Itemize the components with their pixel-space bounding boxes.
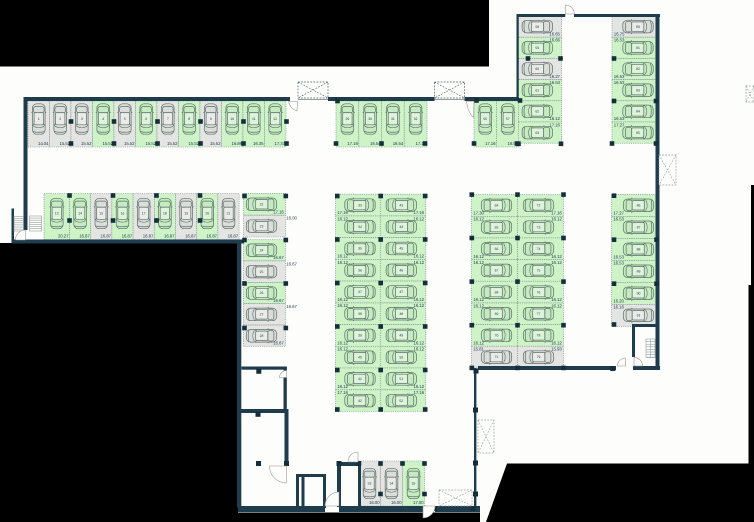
svg-text:15.52: 15.52 [210,141,221,146]
svg-text:77: 77 [537,312,541,316]
svg-text:16.12: 16.12 [414,347,425,352]
svg-text:16.12: 16.12 [551,254,562,259]
svg-text:80: 80 [636,25,640,29]
svg-text:16.12: 16.12 [337,260,348,265]
svg-text:17.16: 17.16 [485,141,496,146]
svg-text:16.53: 16.53 [614,80,625,85]
svg-text:16.12: 16.12 [414,260,425,265]
svg-text:52: 52 [399,399,403,403]
svg-text:16.65: 16.65 [549,31,560,36]
svg-text:83: 83 [636,88,640,92]
svg-text:71: 71 [495,355,499,359]
svg-text:16.12: 16.12 [551,217,562,222]
svg-text:62: 62 [535,110,539,114]
svg-text:16.12: 16.12 [337,254,348,259]
svg-text:16.87: 16.87 [185,234,196,239]
svg-text:66: 66 [495,247,499,251]
svg-text:16.53: 16.53 [613,217,624,222]
svg-text:14: 14 [78,212,82,216]
svg-text:70: 70 [495,334,499,338]
svg-text:16.12: 16.12 [414,254,425,259]
svg-text:48: 48 [399,312,403,316]
svg-text:16.53: 16.53 [613,255,624,260]
svg-text:73: 73 [537,225,541,229]
svg-text:43: 43 [399,203,403,207]
svg-text:85: 85 [636,131,640,135]
svg-text:60: 60 [535,67,539,71]
svg-text:74: 74 [537,247,541,251]
svg-text:15.52: 15.52 [124,141,135,146]
svg-text:16.12: 16.12 [551,260,562,265]
svg-text:10: 10 [230,117,234,121]
svg-text:16.12: 16.12 [551,340,562,345]
svg-text:16.53: 16.53 [549,80,560,85]
svg-text:17.37: 17.37 [275,141,286,146]
svg-text:53: 53 [368,482,372,486]
svg-text:16.12: 16.12 [337,341,348,346]
svg-text:16.12: 16.12 [551,303,562,308]
svg-text:69: 69 [495,312,499,316]
svg-text:15.93: 15.93 [551,347,562,352]
svg-text:36: 36 [358,269,362,273]
svg-text:16.12: 16.12 [414,384,425,389]
svg-text:79: 79 [537,355,541,359]
svg-text:15: 15 [99,212,103,216]
svg-text:17.16: 17.16 [551,211,562,216]
svg-text:16.00: 16.00 [369,500,380,505]
svg-text:16.87: 16.87 [79,234,90,239]
svg-text:76: 76 [537,290,541,294]
svg-text:7: 7 [167,117,169,121]
svg-text:16.12: 16.12 [414,341,425,346]
svg-text:16.12: 16.12 [414,303,425,308]
svg-text:61: 61 [535,88,539,92]
svg-text:41: 41 [358,377,362,381]
svg-text:16.66: 16.66 [549,38,560,43]
svg-text:65: 65 [495,225,499,229]
svg-text:16.12: 16.12 [473,254,484,259]
svg-text:16.86: 16.86 [232,141,243,146]
svg-text:16.67: 16.67 [273,255,284,260]
svg-text:38: 38 [358,312,362,316]
svg-text:27: 27 [260,313,264,317]
svg-text:15.81: 15.81 [473,347,484,352]
svg-text:78: 78 [537,334,541,338]
svg-text:17.16: 17.16 [337,390,348,395]
svg-text:16.12: 16.12 [473,297,484,302]
svg-text:16.87: 16.87 [143,234,154,239]
svg-text:16.53: 16.53 [614,74,625,79]
svg-text:5: 5 [124,117,126,121]
svg-text:16.12: 16.12 [337,303,348,308]
svg-text:63: 63 [535,131,539,135]
svg-text:75: 75 [537,269,541,273]
svg-text:16.12: 16.12 [337,216,348,221]
svg-text:31: 31 [391,117,395,121]
svg-text:8: 8 [188,117,190,121]
svg-text:40: 40 [358,355,362,359]
svg-text:17.16: 17.16 [414,390,425,395]
svg-text:45: 45 [399,247,403,251]
svg-text:17: 17 [142,212,146,216]
svg-text:87: 87 [637,226,641,230]
svg-text:16.12: 16.12 [414,216,425,221]
svg-text:16.53: 16.53 [613,261,624,266]
svg-text:91: 91 [637,314,641,318]
svg-text:16.35: 16.35 [253,141,264,146]
svg-text:16.87: 16.87 [100,234,111,239]
svg-text:16.12: 16.12 [473,303,484,308]
svg-text:82: 82 [636,67,640,71]
svg-text:44: 44 [399,225,403,229]
svg-text:17.30: 17.30 [473,211,484,216]
svg-text:17.00: 17.00 [413,500,424,505]
svg-text:30: 30 [368,117,372,121]
svg-text:16.12: 16.12 [337,384,348,389]
svg-text:37: 37 [358,290,362,294]
svg-text:86: 86 [637,204,641,208]
svg-text:16: 16 [121,212,125,216]
svg-text:49: 49 [399,334,403,338]
svg-text:46: 46 [399,269,403,273]
svg-text:25: 25 [260,270,264,274]
svg-text:3: 3 [81,117,83,121]
svg-text:22: 22 [260,203,264,207]
svg-text:16.67: 16.67 [286,261,297,266]
svg-text:89: 89 [637,270,641,274]
svg-text:24: 24 [260,248,264,252]
svg-text:16.27: 16.27 [549,74,560,79]
svg-text:16.12: 16.12 [337,297,348,302]
svg-text:16.87: 16.87 [164,234,175,239]
svg-text:16.00: 16.00 [286,216,297,221]
svg-text:16.67: 16.67 [273,341,284,346]
svg-text:11: 11 [252,117,256,121]
svg-text:34: 34 [358,225,362,229]
svg-text:13: 13 [55,212,59,216]
svg-text:16.87: 16.87 [122,234,133,239]
svg-text:35: 35 [358,247,362,251]
svg-text:17.16: 17.16 [337,210,348,215]
svg-text:17.27: 17.27 [614,122,625,127]
svg-text:15.52: 15.52 [81,141,92,146]
svg-text:12: 12 [273,117,277,121]
svg-text:16.12: 16.12 [551,297,562,302]
svg-text:16.75: 16.75 [614,31,625,36]
svg-text:58: 58 [535,25,539,29]
svg-text:16.12: 16.12 [337,347,348,352]
svg-text:1: 1 [38,117,40,121]
svg-text:23: 23 [260,224,264,228]
svg-text:42: 42 [358,399,362,403]
svg-text:6: 6 [145,117,147,121]
svg-text:32: 32 [414,117,418,121]
svg-text:72: 72 [537,204,541,208]
svg-text:16.12: 16.12 [473,260,484,265]
svg-text:16.87: 16.87 [206,234,217,239]
svg-text:90: 90 [637,292,641,296]
svg-text:16.67: 16.67 [273,298,284,303]
svg-text:14.04: 14.04 [38,141,49,146]
svg-text:39: 39 [358,334,362,338]
svg-text:54: 54 [390,482,394,486]
svg-text:20.27: 20.27 [58,234,69,239]
svg-text:16.00: 16.00 [391,500,402,505]
svg-text:16.12: 16.12 [414,297,425,302]
svg-text:16.87: 16.87 [228,234,239,239]
svg-text:16.20: 16.20 [613,299,624,304]
svg-text:17.16: 17.16 [347,141,358,146]
svg-text:16.67: 16.67 [286,304,297,309]
svg-text:33: 33 [358,203,362,207]
svg-text:57: 57 [506,117,510,121]
svg-text:16.12: 16.12 [549,116,560,121]
svg-text:56: 56 [483,117,487,121]
svg-text:88: 88 [637,248,641,252]
svg-text:16.12: 16.12 [473,217,484,222]
svg-text:4: 4 [102,117,104,121]
svg-text:17.16: 17.16 [414,210,425,215]
svg-text:17.16: 17.16 [273,209,284,214]
svg-text:64: 64 [495,204,499,208]
svg-text:9: 9 [210,117,212,121]
svg-text:67: 67 [495,269,499,273]
svg-text:16.53: 16.53 [614,38,625,43]
svg-text:84: 84 [636,110,640,114]
svg-text:16.16: 16.16 [613,305,624,310]
svg-text:16.53: 16.53 [614,116,625,121]
svg-text:50: 50 [399,355,403,359]
svg-text:2: 2 [59,117,61,121]
svg-text:18: 18 [163,212,167,216]
svg-text:16.12: 16.12 [473,340,484,345]
svg-text:15.52: 15.52 [146,141,157,146]
svg-text:16.54: 16.54 [393,141,404,146]
svg-text:29: 29 [346,117,350,121]
svg-text:28: 28 [260,334,264,338]
svg-text:17.16: 17.16 [549,122,560,127]
svg-text:81: 81 [636,46,640,50]
svg-text:51: 51 [399,377,403,381]
svg-text:15.52: 15.52 [189,141,200,146]
svg-text:17.27: 17.27 [613,211,624,216]
svg-text:59: 59 [535,46,539,50]
svg-text:55: 55 [412,482,416,486]
svg-text:47: 47 [399,290,403,294]
svg-text:26: 26 [260,291,264,295]
svg-text:68: 68 [495,290,499,294]
svg-text:19: 19 [184,212,188,216]
svg-text:21: 21 [227,212,231,216]
svg-text:20: 20 [205,212,209,216]
svg-text:15.52: 15.52 [167,141,178,146]
